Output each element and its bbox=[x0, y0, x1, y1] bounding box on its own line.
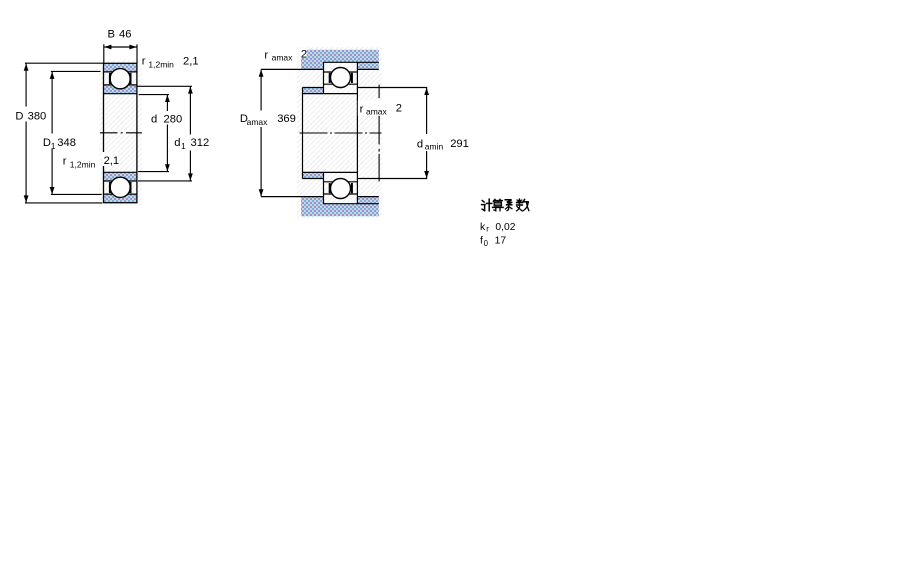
svg-text:d: d bbox=[417, 139, 423, 151]
svg-text:amax: amax bbox=[247, 117, 269, 127]
svg-text:amax: amax bbox=[366, 106, 388, 116]
svg-text:46: 46 bbox=[119, 29, 131, 41]
svg-text:291: 291 bbox=[450, 138, 469, 150]
svg-text:f: f bbox=[480, 236, 483, 247]
svg-text:2: 2 bbox=[396, 103, 402, 115]
svg-text:D: D bbox=[15, 111, 23, 123]
svg-text:r: r bbox=[264, 50, 268, 62]
svg-text:B: B bbox=[108, 29, 115, 41]
svg-text:r: r bbox=[486, 225, 489, 234]
svg-text:d: d bbox=[151, 113, 157, 125]
svg-text:amin: amin bbox=[425, 141, 444, 151]
svg-text:0,02: 0,02 bbox=[495, 222, 515, 233]
svg-text:1,2min: 1,2min bbox=[148, 60, 174, 70]
svg-text:k: k bbox=[480, 222, 486, 233]
svg-text:380: 380 bbox=[28, 111, 47, 123]
svg-text:2,1: 2,1 bbox=[183, 56, 199, 68]
svg-text:amax: amax bbox=[272, 53, 294, 63]
svg-text:369: 369 bbox=[277, 113, 296, 125]
svg-text:17: 17 bbox=[495, 236, 507, 247]
svg-text:1,2min: 1,2min bbox=[70, 160, 96, 170]
svg-text:0: 0 bbox=[484, 239, 489, 248]
svg-text:348: 348 bbox=[57, 137, 76, 149]
svg-text:1: 1 bbox=[181, 141, 186, 151]
svg-text:280: 280 bbox=[164, 113, 183, 125]
svg-text:r: r bbox=[360, 103, 364, 115]
svg-text:2: 2 bbox=[301, 48, 307, 60]
svg-text:2,1: 2,1 bbox=[104, 155, 120, 167]
svg-text:1: 1 bbox=[51, 141, 56, 151]
svg-text:r: r bbox=[63, 156, 67, 168]
svg-text:312: 312 bbox=[191, 137, 210, 149]
svg-text:d: d bbox=[174, 137, 180, 149]
svg-text:r: r bbox=[142, 56, 146, 68]
